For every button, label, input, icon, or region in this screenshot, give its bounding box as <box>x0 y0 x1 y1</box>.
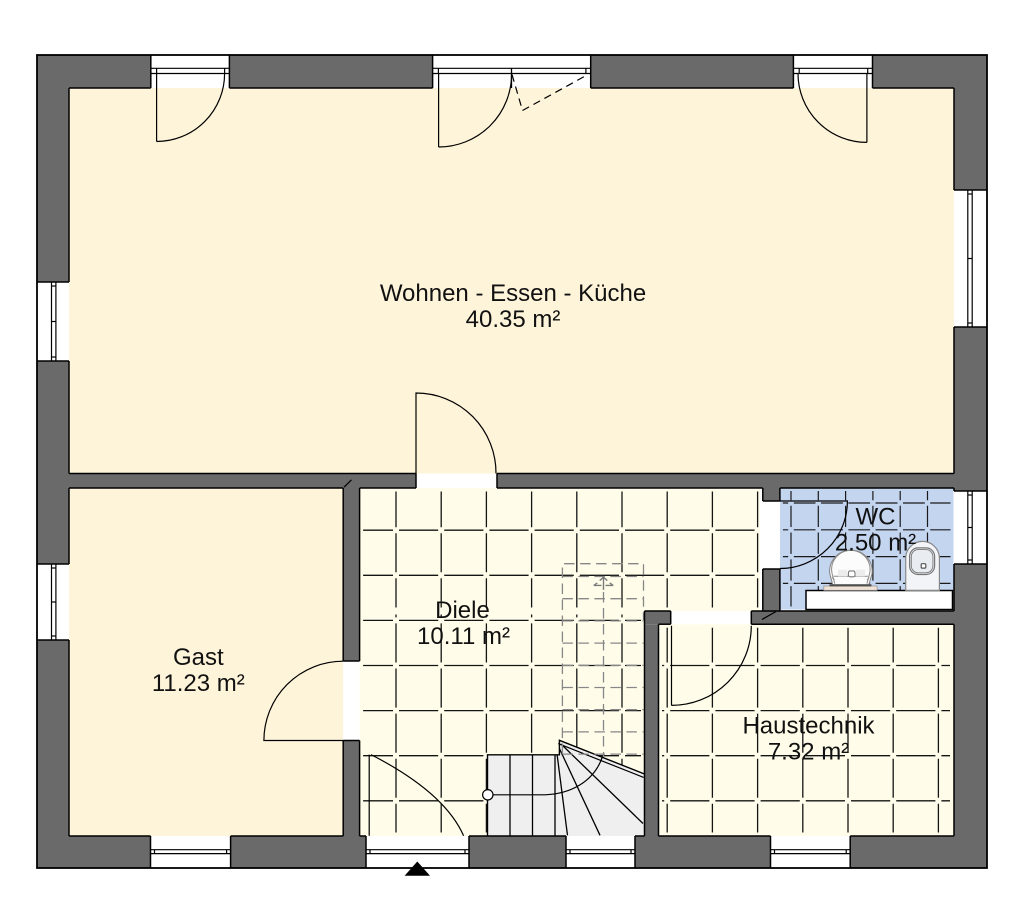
svg-text:Gast: Gast <box>173 644 224 671</box>
svg-text:WC: WC <box>856 504 896 531</box>
svg-text:2.50 m²: 2.50 m² <box>835 530 916 557</box>
svg-text:7.32 m²: 7.32 m² <box>768 739 849 766</box>
svg-text:Diele: Diele <box>435 597 490 624</box>
svg-text:10.11 m²: 10.11 m² <box>417 623 510 650</box>
svg-text:40.35 m²: 40.35 m² <box>466 306 561 333</box>
svg-text:Haustechnik: Haustechnik <box>742 713 875 740</box>
svg-text:Wohnen - Essen - Küche: Wohnen - Essen - Küche <box>380 280 646 307</box>
svg-text:11.23 m²: 11.23 m² <box>152 670 245 697</box>
